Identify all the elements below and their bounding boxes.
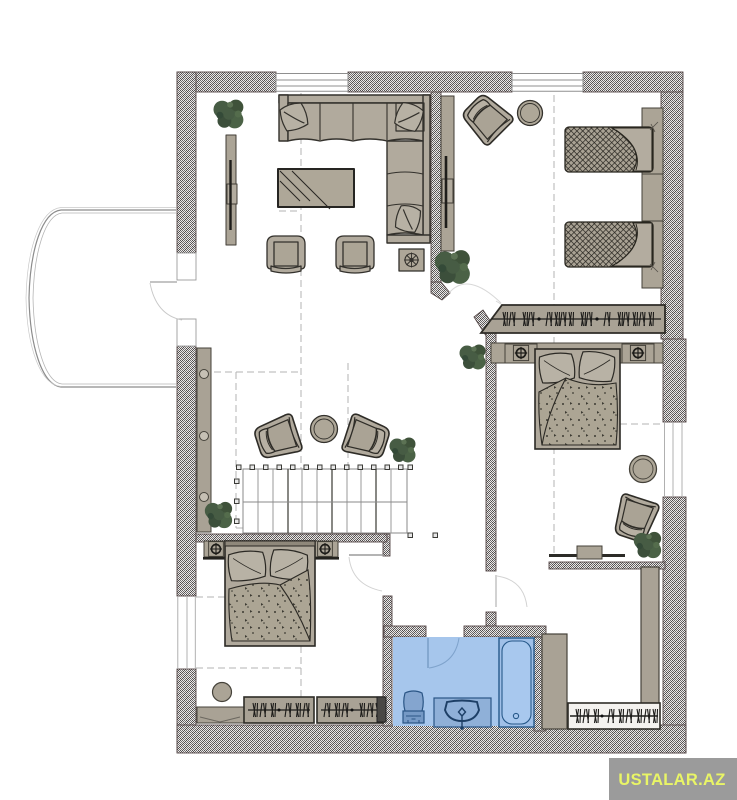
svg-text:USTALAR.AZ: USTALAR.AZ [618, 771, 725, 789]
